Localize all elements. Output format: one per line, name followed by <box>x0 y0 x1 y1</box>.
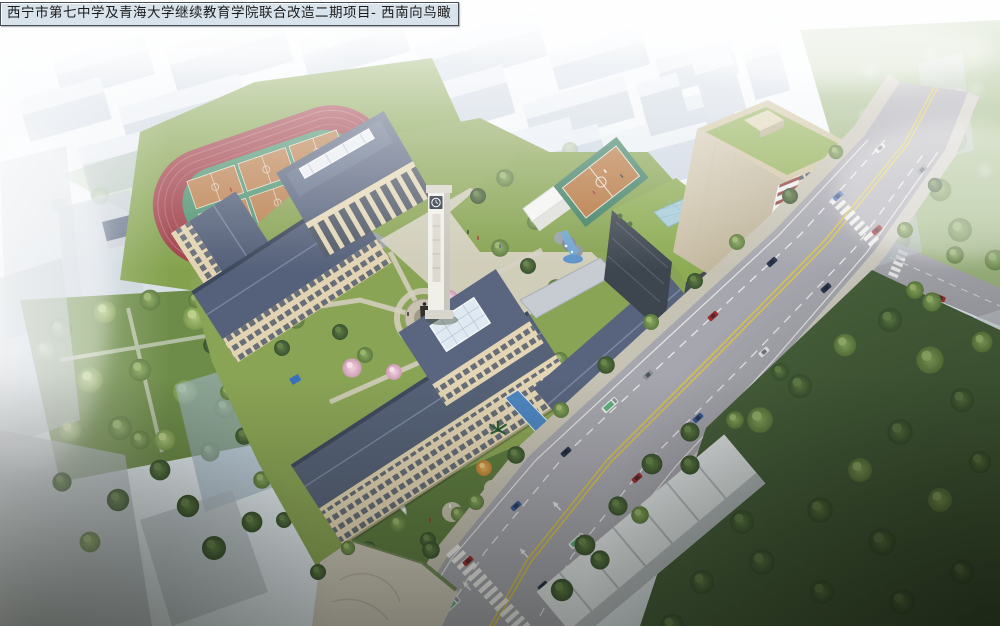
rendering-canvas: % <box>0 0 1000 626</box>
vignette <box>0 0 1000 626</box>
project-title-caption: 西宁市第七中学及青海大学继续教育学院联合改造二期项目- 西南向鸟瞰 <box>0 2 459 26</box>
aerial-rendering-page: % <box>0 0 1000 626</box>
